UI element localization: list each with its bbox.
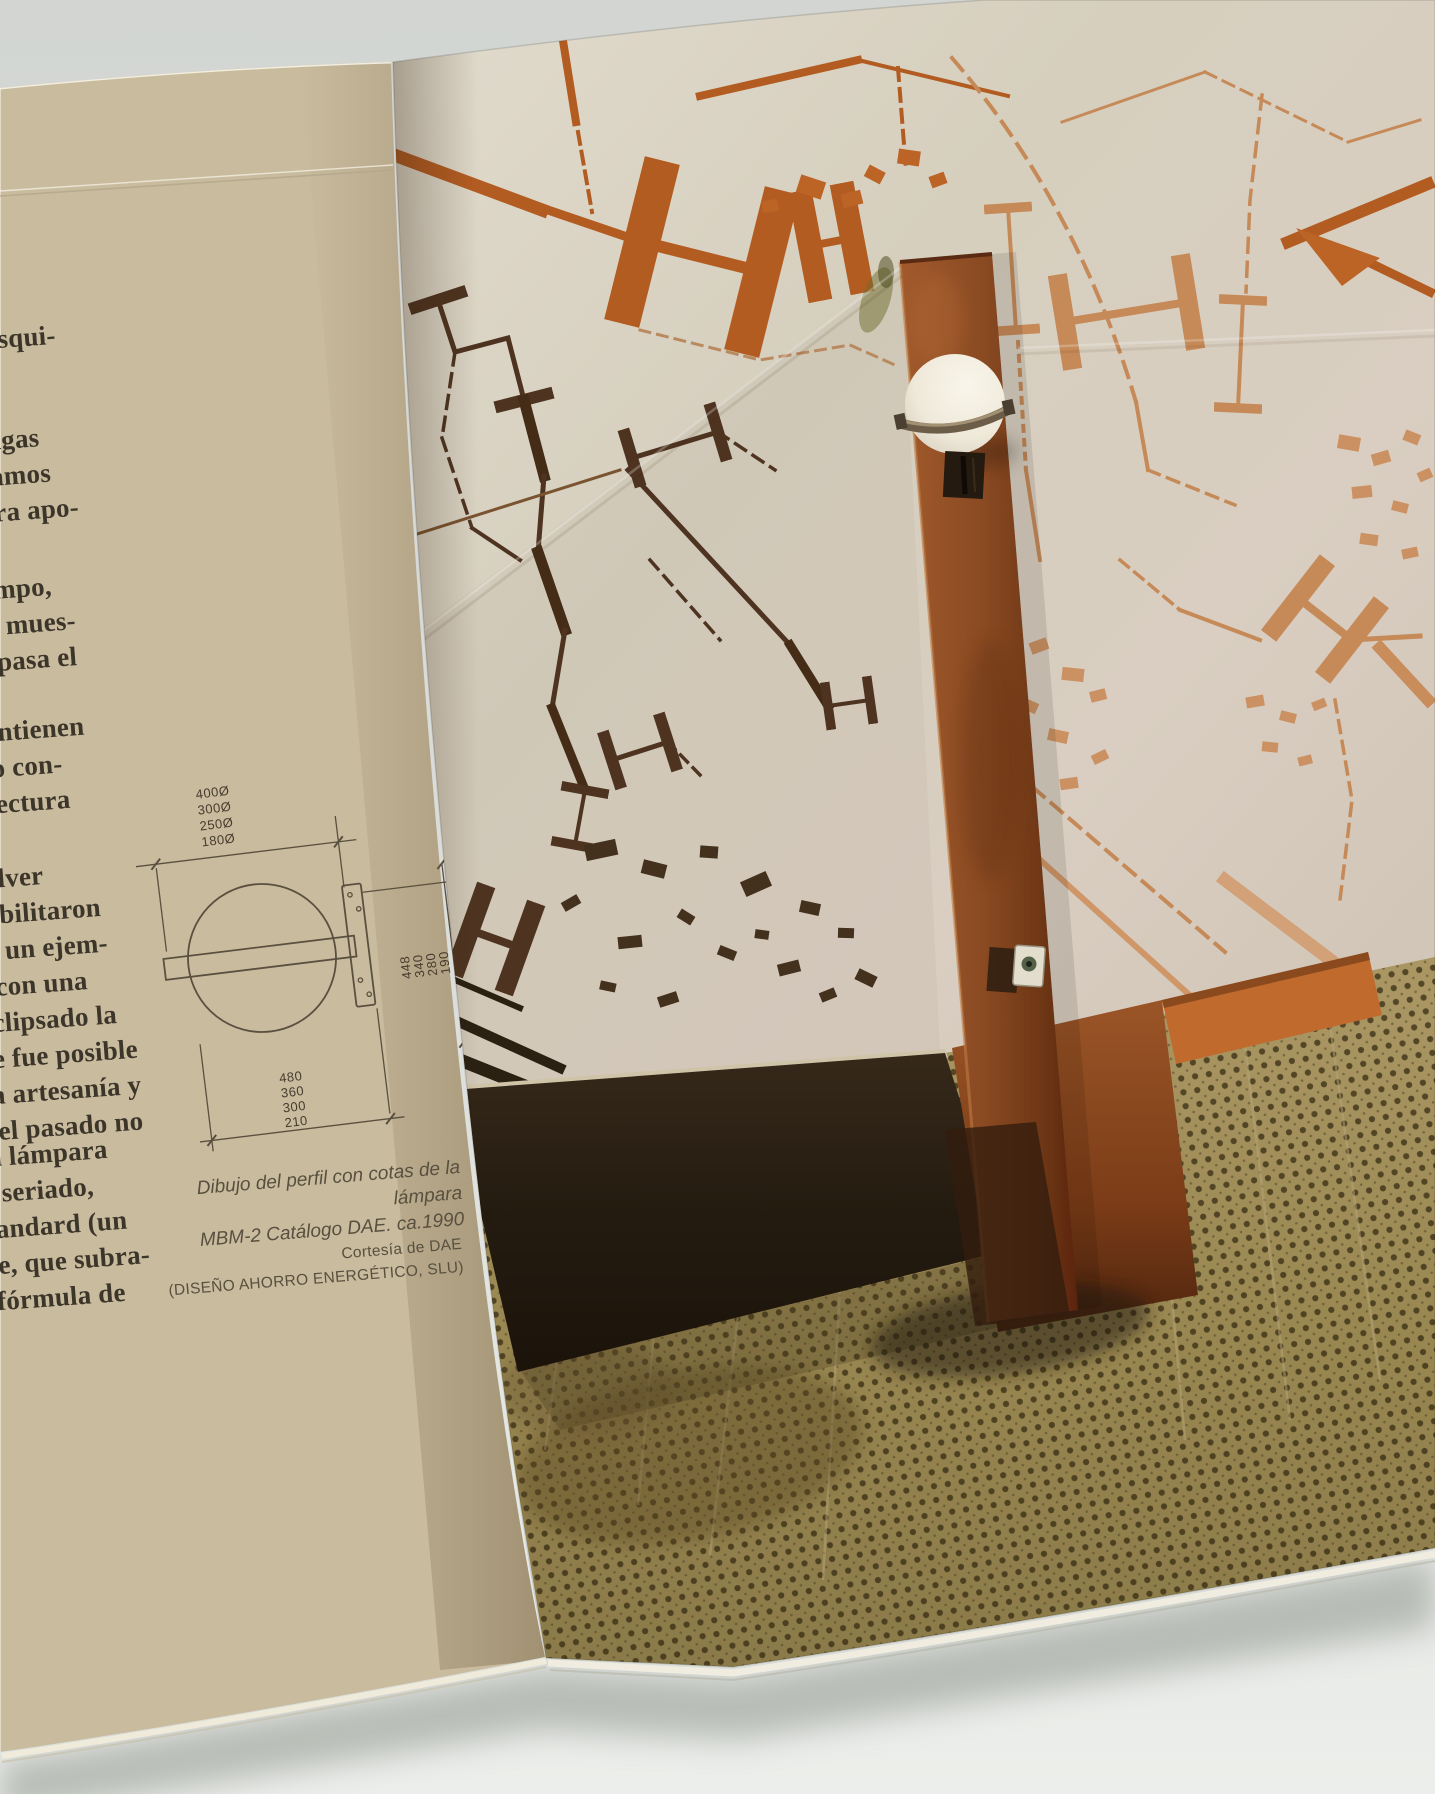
body-paragraph: esqui- — [0, 317, 57, 358]
lamp-bracket — [943, 451, 985, 499]
body-paragraph: campo, da mues- aspasa el — [0, 566, 79, 681]
photo-page — [380, 0, 1435, 1680]
lamp-globe — [905, 354, 1005, 454]
book-photo-scene: 400Ø 300Ø 250Ø 180Ø 448 340 280 190 480 … — [0, 0, 1435, 1794]
text-line: ara apo- — [0, 489, 80, 532]
dim-label: 190 — [436, 950, 454, 975]
book-spread-artwork: 400Ø 300Ø 250Ø 180Ø 448 340 280 190 480 … — [0, 0, 1435, 1794]
text-line: esqui- — [0, 317, 57, 358]
body-paragraph: o de esta lámpara roducto seriado, ento … — [0, 1128, 154, 1325]
body-paragraph: ragas ramos ara apo- — [0, 417, 80, 532]
wall-switch — [987, 945, 1046, 993]
dim-label: 210 — [284, 1113, 309, 1131]
body-paragraph: lo contienen nudo con- quitectura — [0, 708, 91, 826]
body-paragraph: resolver posibilitaron 2 es un ejem- as,… — [0, 851, 145, 1151]
